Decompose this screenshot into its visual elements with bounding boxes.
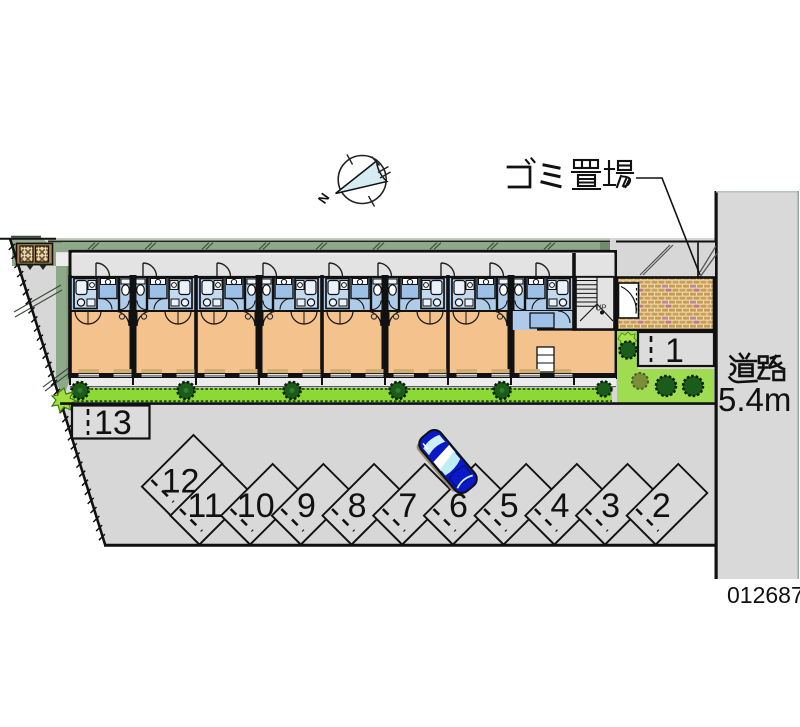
- svg-text:4: 4: [550, 487, 569, 525]
- svg-text:5.4m: 5.4m: [718, 381, 791, 418]
- svg-text:9: 9: [297, 487, 316, 525]
- svg-text:1: 1: [665, 332, 684, 370]
- svg-text:012687: 012687: [727, 582, 800, 608]
- svg-text:8: 8: [348, 487, 367, 525]
- svg-text:2: 2: [652, 487, 671, 525]
- svg-text:3: 3: [601, 487, 620, 525]
- svg-text:13: 13: [94, 404, 132, 442]
- svg-text:UP: UP: [595, 304, 606, 313]
- svg-text:10: 10: [237, 487, 275, 525]
- svg-text:7: 7: [398, 487, 417, 525]
- svg-text:11: 11: [187, 487, 222, 525]
- svg-text:5: 5: [500, 487, 519, 525]
